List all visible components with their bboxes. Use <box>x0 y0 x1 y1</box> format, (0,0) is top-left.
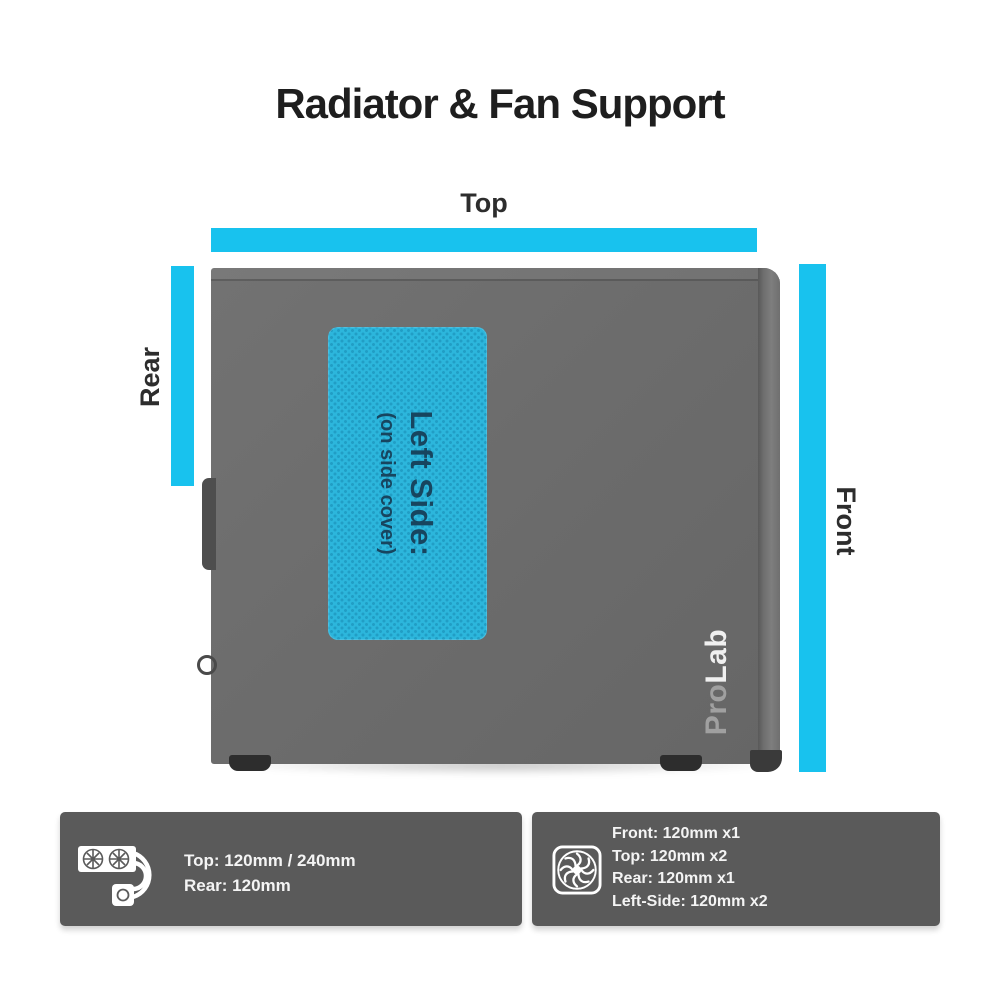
spec-panels-row: Top: 120mm / 240mm Rear: 120mm <box>60 812 940 926</box>
radiator-spec-text: Top: 120mm / 240mm Rear: 120mm <box>184 848 356 898</box>
fan-spec-line: Rear: 120mm x1 <box>612 868 768 891</box>
case-top-seam <box>211 268 780 281</box>
left-side-label-line2: (on side cover) <box>376 412 399 554</box>
case-rear-foot <box>229 755 271 771</box>
infographic-canvas: Radiator & Fan Support Top Rear Front Le… <box>0 0 1000 1000</box>
left-side-vent-panel: Left Side: (on side cover) <box>328 327 487 640</box>
top-side-label: Top <box>211 188 757 219</box>
case-front-foot <box>660 755 702 771</box>
fan-spec-line: Left-Side: 120mm x2 <box>612 891 768 914</box>
rear-side-label: Rear <box>135 317 165 437</box>
fan-spec-line: Front: 120mm x1 <box>612 823 768 846</box>
left-side-panel-label: Left Side: (on side cover) <box>328 327 487 640</box>
aio-radiator-icon <box>76 834 176 910</box>
logo-part-pro: Pro <box>700 684 733 736</box>
fan-spec-panel: Front: 120mm x1 Top: 120mm x2 Rear: 120m… <box>532 812 940 926</box>
case-rear-latch <box>202 478 216 570</box>
logo-part-lab: Lab <box>700 629 733 684</box>
radiator-spec-line: Top: 120mm / 240mm <box>184 848 356 873</box>
rear-support-bar <box>171 266 194 486</box>
fan-spec-text: Front: 120mm x1 Top: 120mm x2 Rear: 120m… <box>612 823 768 913</box>
case-fan-icon <box>552 845 602 895</box>
radiator-spec-panel: Top: 120mm / 240mm Rear: 120mm <box>60 812 522 926</box>
page-title: Radiator & Fan Support <box>0 80 1000 128</box>
padlock-loop-icon <box>197 655 217 675</box>
case-front-edge <box>758 268 780 764</box>
radiator-spec-line: Rear: 120mm <box>184 873 356 898</box>
top-support-bar <box>211 228 757 252</box>
left-side-label-line1: Left Side: <box>404 410 440 556</box>
prolab-logo: ProLab <box>701 607 733 757</box>
front-support-bar <box>799 264 826 772</box>
front-side-label: Front <box>831 446 861 596</box>
fan-spec-line: Top: 120mm x2 <box>612 846 768 869</box>
pc-case-side-view: Left Side: (on side cover) ProLab <box>211 268 780 764</box>
